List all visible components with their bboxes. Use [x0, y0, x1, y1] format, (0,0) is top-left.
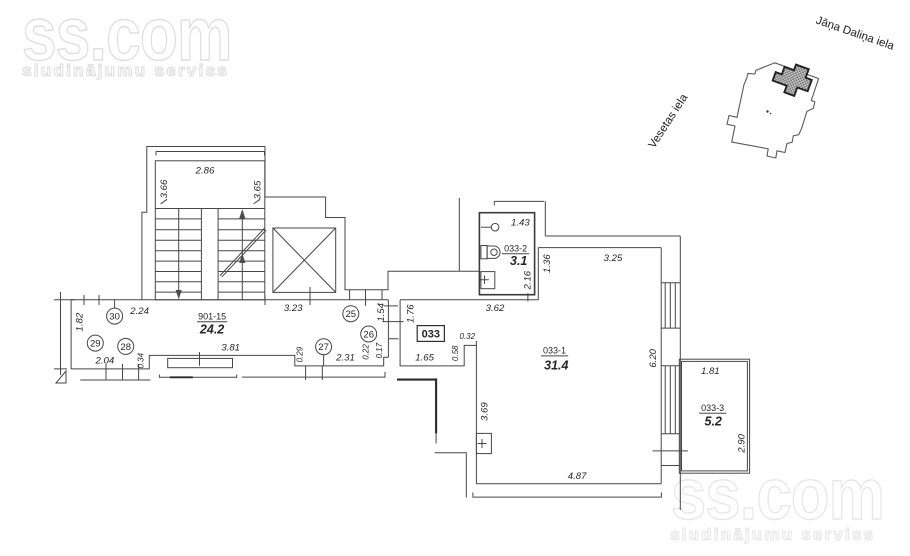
svg-text:Vesetas iela: Vesetas iela	[647, 92, 691, 151]
svg-text:3.81: 3.81	[221, 342, 240, 353]
svg-text:0.17: 0.17	[375, 342, 384, 358]
svg-text:0.29: 0.29	[295, 346, 304, 362]
svg-text:2.86: 2.86	[195, 166, 215, 177]
svg-text:1.54: 1.54	[376, 303, 387, 322]
svg-text:901-15: 901-15	[198, 312, 226, 322]
svg-text:3.62: 3.62	[486, 303, 505, 314]
svg-text:Jāņa Daliņa iela: Jāņa Daliņa iela	[814, 15, 896, 53]
svg-text:1.81: 1.81	[701, 366, 720, 377]
svg-text:033-2: 033-2	[504, 244, 527, 254]
svg-text:1.65: 1.65	[415, 353, 434, 364]
svg-text:3.66: 3.66	[159, 179, 170, 198]
svg-text:24.2: 24.2	[199, 323, 224, 337]
svg-text:1.76: 1.76	[406, 304, 417, 323]
svg-text:0.58: 0.58	[451, 345, 460, 361]
svg-text:3.1: 3.1	[510, 254, 527, 268]
svg-text:5.2: 5.2	[705, 415, 722, 429]
svg-text:0.32: 0.32	[460, 332, 476, 341]
svg-text:4.87: 4.87	[568, 471, 587, 482]
svg-text:2.04: 2.04	[95, 356, 115, 367]
svg-text:2.90: 2.90	[737, 433, 748, 453]
svg-text:26: 26	[363, 330, 374, 341]
svg-text:1.36: 1.36	[542, 254, 553, 273]
svg-text:3.25: 3.25	[604, 253, 623, 264]
svg-text:2.24: 2.24	[129, 306, 149, 317]
svg-text:1.82: 1.82	[75, 312, 86, 331]
svg-text:3.23: 3.23	[284, 303, 303, 314]
svg-text:3.65: 3.65	[253, 180, 264, 199]
svg-text:033: 033	[422, 329, 440, 341]
svg-text:2.31: 2.31	[335, 353, 355, 364]
svg-text:30: 30	[109, 312, 120, 323]
svg-text:1.43: 1.43	[511, 218, 530, 229]
svg-text:033-3: 033-3	[701, 403, 724, 413]
svg-text:2.16: 2.16	[522, 270, 533, 290]
svg-text:6.20: 6.20	[648, 348, 659, 367]
svg-text:29: 29	[90, 339, 101, 350]
svg-text:033-1: 033-1	[543, 346, 566, 356]
svg-text:25: 25	[346, 309, 357, 320]
svg-text:31.4: 31.4	[544, 359, 568, 373]
svg-text:0.22: 0.22	[361, 344, 370, 360]
svg-text:27: 27	[318, 342, 329, 353]
svg-text:28: 28	[120, 342, 131, 353]
svg-text:0.34: 0.34	[137, 352, 146, 368]
svg-text:3.69: 3.69	[480, 402, 491, 421]
